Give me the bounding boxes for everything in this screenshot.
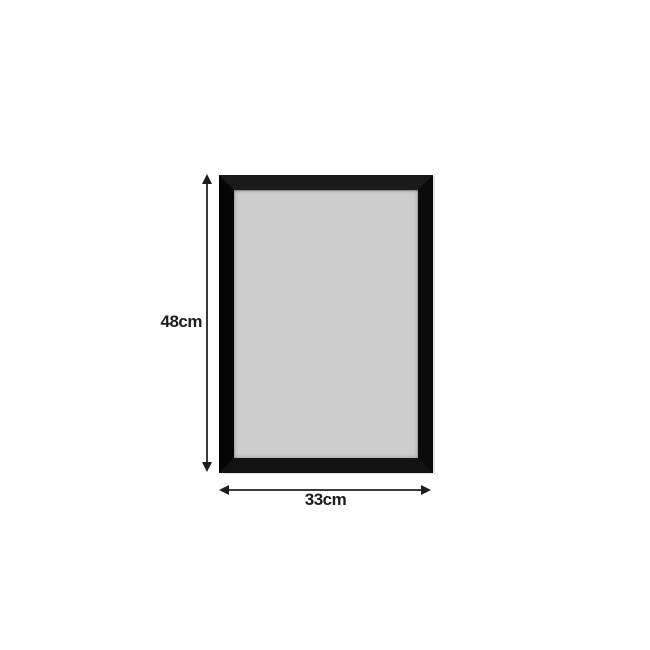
height-dimension-arrow: [201, 174, 212, 472]
arrow-up-icon: [202, 174, 212, 184]
arrow-right-icon: [421, 485, 431, 495]
frame-inner-panel: [234, 190, 418, 458]
height-dimension-label: 48cm: [102, 312, 202, 332]
arrow-left-icon: [219, 485, 229, 495]
height-dimension-line: [206, 177, 208, 469]
picture-frame: [219, 175, 433, 473]
arrow-down-icon: [202, 462, 212, 472]
product-image-canvas: 48cm 33cm: [0, 0, 650, 650]
width-dimension-label: 33cm: [275, 490, 376, 510]
